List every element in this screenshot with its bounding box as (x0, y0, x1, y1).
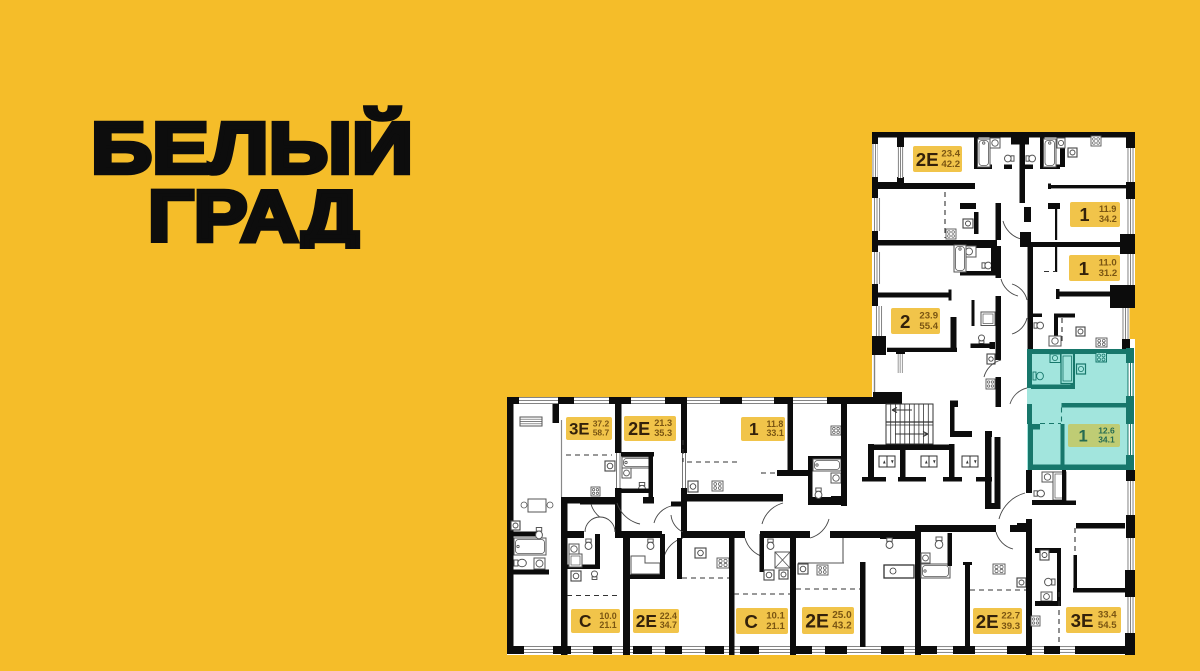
svg-text:34.1: 34.1 (1098, 434, 1115, 444)
svg-text:21.1: 21.1 (599, 620, 616, 630)
svg-text:55.4: 55.4 (919, 321, 938, 332)
svg-text:2Е: 2Е (916, 149, 939, 170)
svg-text:33.1: 33.1 (767, 428, 784, 438)
svg-text:С: С (744, 611, 758, 632)
svg-text:21.1: 21.1 (766, 621, 785, 632)
svg-text:2Е: 2Е (805, 611, 829, 633)
svg-text:43.2: 43.2 (832, 621, 852, 632)
svg-text:25.0: 25.0 (832, 610, 852, 621)
svg-text:21.3: 21.3 (654, 418, 672, 428)
svg-text:2Е: 2Е (628, 419, 650, 439)
svg-text:1: 1 (1079, 205, 1089, 225)
svg-text:2: 2 (900, 311, 910, 332)
svg-text:ГРАД: ГРАД (148, 177, 359, 257)
svg-text:58.7: 58.7 (593, 427, 610, 437)
svg-text:42.2: 42.2 (941, 159, 960, 170)
svg-text:3Е: 3Е (569, 420, 589, 439)
svg-text:2Е: 2Е (976, 611, 999, 632)
svg-text:34.2: 34.2 (1099, 214, 1117, 224)
svg-text:31.2: 31.2 (1099, 268, 1118, 279)
svg-text:С: С (579, 611, 591, 631)
svg-text:54.5: 54.5 (1098, 620, 1117, 631)
svg-text:35.3: 35.3 (654, 428, 672, 438)
svg-text:11.9: 11.9 (1099, 204, 1116, 214)
svg-text:3Е: 3Е (1071, 610, 1094, 631)
svg-text:2Е: 2Е (636, 611, 657, 631)
svg-text:34.7: 34.7 (660, 620, 677, 630)
svg-text:1: 1 (749, 419, 759, 439)
svg-text:1: 1 (1078, 427, 1087, 446)
svg-text:39.3: 39.3 (1001, 621, 1020, 632)
svg-text:1: 1 (1079, 258, 1089, 279)
